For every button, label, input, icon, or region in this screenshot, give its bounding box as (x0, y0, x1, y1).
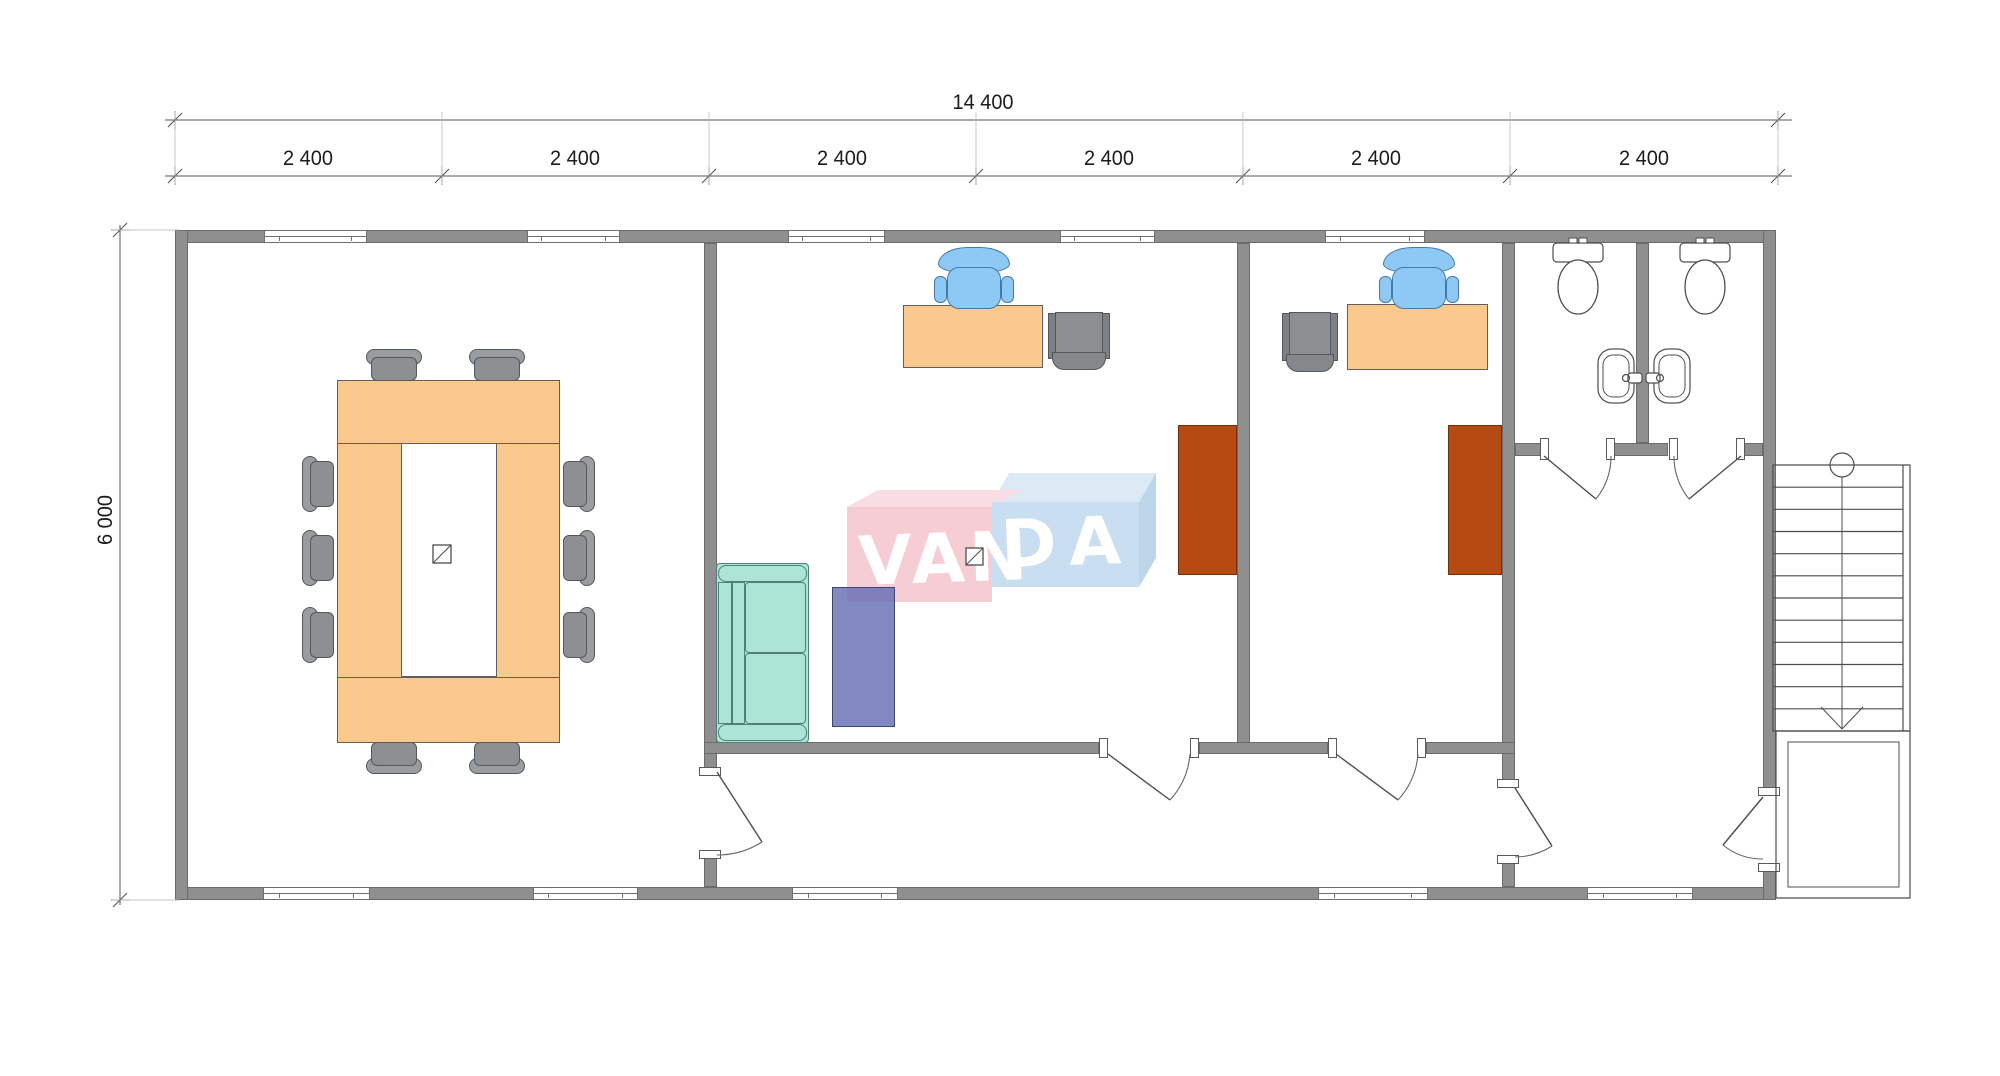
dim-label-segment: 2 400 (550, 147, 600, 171)
dim-label-segment: 2 400 (1351, 147, 1401, 171)
dim-label-segment: 2 400 (283, 147, 333, 171)
floor-plan-canvas: VANDA 14 4002 4002 4002 4002 4002 4002 4… (0, 0, 2000, 1076)
dim-label-total: 14 400 (952, 91, 1013, 115)
dimension-text-layer: 14 4002 4002 4002 4002 4002 4002 4006 00… (0, 0, 2000, 1076)
dim-label-segment: 2 400 (1084, 147, 1134, 171)
dim-label-segment: 2 400 (817, 147, 867, 171)
dim-label-height: 6 000 (94, 495, 118, 545)
dim-label-segment: 2 400 (1619, 147, 1669, 171)
